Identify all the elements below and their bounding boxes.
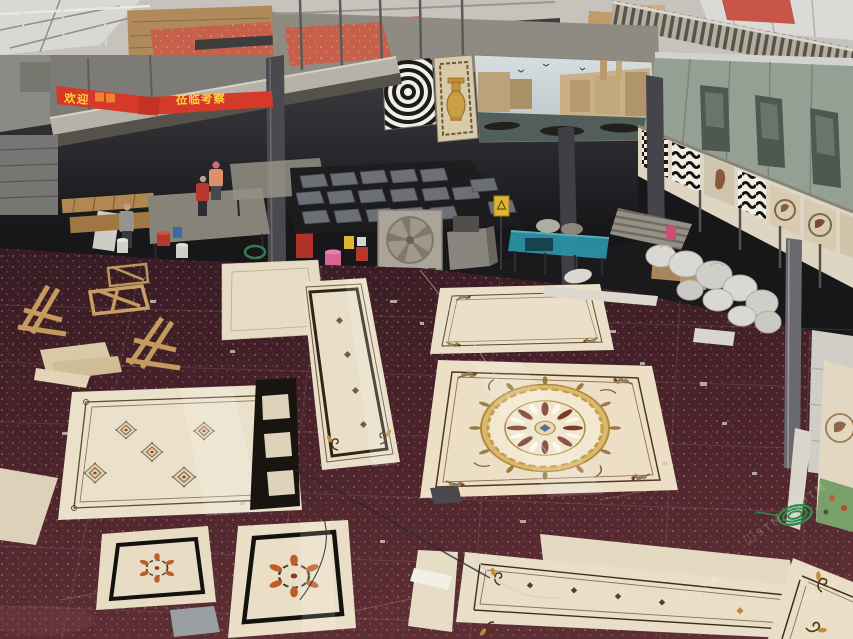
banner-text-left: 欢迎 bbox=[63, 91, 90, 107]
banner-illegible-char bbox=[106, 94, 115, 103]
bundle bbox=[536, 219, 560, 233]
exhaust-fan bbox=[378, 210, 442, 273]
wreath-panel-large bbox=[228, 520, 356, 638]
black-border-strip bbox=[250, 378, 300, 510]
banner-text-right: 莅临考察 bbox=[176, 91, 226, 107]
yellow-bottle bbox=[344, 236, 354, 249]
machine-on-pedestal bbox=[453, 216, 479, 232]
grey-tile-piece bbox=[170, 606, 220, 637]
concrete-pedestal bbox=[447, 228, 490, 270]
red-bucket bbox=[356, 247, 368, 261]
pink-bucket bbox=[666, 226, 676, 240]
wreath-panel-small bbox=[96, 526, 216, 610]
photo-canvas: STM STM STM STM 欢迎 莅临考察 bbox=[0, 0, 853, 639]
factory-scene: STM STM STM STM 欢迎 莅临考察 bbox=[0, 0, 853, 639]
vase-mosaic-mural bbox=[434, 55, 478, 142]
dark-tile-piece bbox=[430, 486, 462, 504]
banner-fold bbox=[138, 96, 160, 116]
bundle bbox=[561, 223, 583, 235]
medallion-panel-large bbox=[420, 360, 678, 498]
panel-rack bbox=[0, 135, 58, 215]
banner-illegible-char bbox=[95, 93, 104, 102]
